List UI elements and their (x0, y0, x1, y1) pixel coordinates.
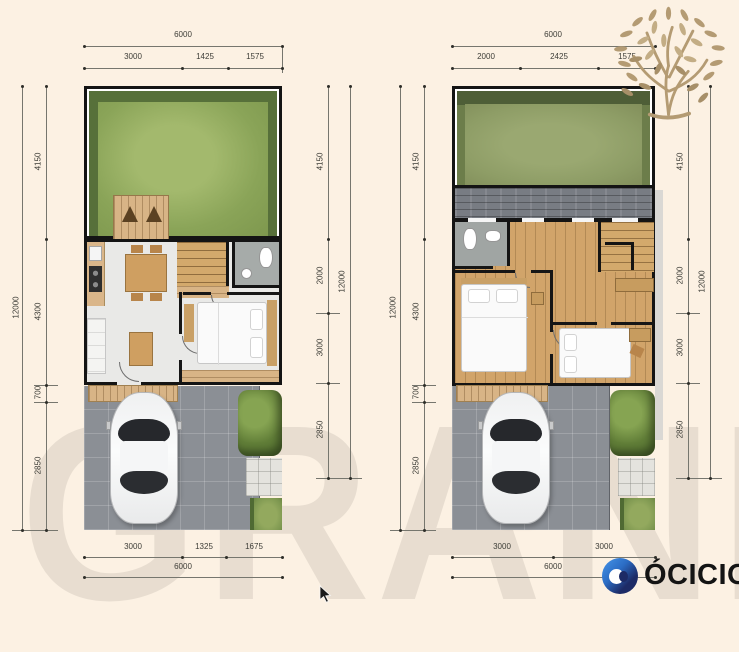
tick (349, 477, 352, 480)
tick (83, 556, 86, 559)
ocicio-logo-icon (602, 558, 638, 594)
dining-table (125, 254, 167, 292)
stair-rail (605, 242, 633, 245)
tick (181, 556, 184, 559)
dim-f1-left-seg3: 2850 (34, 446, 43, 486)
car-mirror (106, 421, 111, 430)
tick (423, 238, 426, 241)
dim-f2-bot-seg0: 3000 (477, 542, 527, 551)
wall (179, 292, 182, 334)
pillow (496, 289, 518, 303)
tick (281, 67, 284, 70)
tick (687, 382, 690, 385)
side-table (531, 292, 544, 305)
dim-f1-left-seg0: 4150 (34, 142, 43, 182)
dim-f1-top-seg2: 1575 (230, 52, 280, 61)
dim-f1-right-seg3: 2850 (316, 410, 325, 450)
tick (687, 477, 690, 480)
door-arc (119, 362, 139, 382)
tick (83, 576, 86, 579)
dining-chair (150, 245, 162, 253)
tick (552, 556, 555, 559)
dim-f1-right-seg2: 3000 (316, 328, 325, 368)
roof-edge-strip (655, 190, 663, 440)
tick (423, 401, 426, 404)
dim-f2-right-seg1: 2000 (676, 256, 685, 296)
deck-chair (122, 206, 138, 222)
car-mirror (549, 421, 554, 430)
dim-line (424, 86, 425, 530)
dim-ext (316, 478, 362, 479)
ocicio-logo-text: ÓCICIO (644, 559, 739, 592)
dim-f2-left-seg2: 700 (412, 373, 421, 413)
tick (21, 529, 24, 532)
duvet-fold (462, 317, 528, 318)
dim-f1-top-seg0: 3000 (108, 52, 158, 61)
bath-sink (485, 230, 501, 242)
dim-f2-right-seg0: 4150 (676, 142, 685, 182)
dim-f1-bot-seg0: 3000 (108, 542, 158, 551)
dim-f1-top-seg1: 1425 (180, 52, 230, 61)
tick (687, 312, 690, 315)
tick (225, 556, 228, 559)
dim-f2-right-total: 12000 (698, 262, 707, 302)
dim-ext (12, 530, 58, 531)
floor1-plan (84, 86, 282, 530)
stair-rail (631, 242, 634, 270)
wall (455, 266, 493, 269)
tick (687, 238, 690, 241)
tick (281, 576, 284, 579)
car-mirror (177, 421, 182, 430)
bedroom-wood-strip (182, 370, 279, 382)
dim-f2-left-seg1: 4300 (412, 292, 421, 332)
garden-deck (113, 195, 169, 242)
tick (45, 401, 48, 404)
toilet (463, 228, 477, 250)
wall (550, 354, 553, 383)
duvet-fold (218, 303, 219, 365)
tick (327, 85, 330, 88)
headboard (267, 300, 277, 366)
coffee-table (129, 332, 153, 366)
car (482, 392, 550, 524)
tick (451, 45, 454, 48)
pillow (250, 337, 263, 358)
floor2-plan (452, 86, 655, 530)
stairs (598, 222, 654, 272)
desk (629, 328, 651, 342)
tick (45, 85, 48, 88)
bed (559, 328, 631, 378)
dim-f2-bot-seg1: 3000 (579, 542, 629, 551)
wall (611, 322, 654, 325)
sofa (87, 318, 106, 374)
tick (399, 85, 402, 88)
tick (327, 477, 330, 480)
dim-f1-left-total: 12000 (12, 288, 21, 328)
wall (553, 322, 597, 325)
roof-tile-strip (452, 188, 655, 218)
tree-icon (598, 2, 739, 122)
dim-f1-top-total: 6000 (148, 30, 218, 39)
tick (45, 384, 48, 387)
bed (197, 302, 267, 364)
car-mirror (478, 421, 483, 430)
tick (45, 238, 48, 241)
tick (423, 529, 426, 532)
dim-line (400, 86, 401, 530)
tick (83, 45, 86, 48)
deck-chair (146, 206, 162, 222)
floor1-house (84, 239, 282, 385)
tick (281, 45, 284, 48)
tick (423, 85, 426, 88)
tick (519, 67, 522, 70)
shrub (238, 390, 282, 456)
car-roof (120, 441, 168, 472)
dim-f2-left-seg3: 2850 (412, 446, 421, 486)
dim-f1-right-total: 12000 (338, 262, 347, 302)
wall (183, 292, 211, 295)
toilet (259, 247, 273, 268)
tick (349, 85, 352, 88)
tick (327, 312, 330, 315)
paver-path (618, 458, 655, 496)
bath-sink (241, 268, 252, 279)
dim-f1-bot-seg1: 1325 (179, 542, 229, 551)
dim-line (22, 86, 23, 530)
dim-f1-left-seg2: 700 (34, 373, 43, 413)
car-roof (492, 441, 540, 472)
tick (451, 576, 454, 579)
chair (629, 344, 644, 358)
floor1-garden (84, 86, 282, 239)
pillow (250, 309, 263, 330)
dim-f2-top-seg1: 2425 (534, 52, 584, 61)
dim-f1-bot-total: 6000 (148, 562, 218, 571)
tick (709, 477, 712, 480)
dim-line (328, 86, 329, 478)
stairs (177, 242, 229, 286)
dim-f1-right-seg1: 2000 (316, 256, 325, 296)
bedside-bench (184, 304, 194, 342)
bathroom (455, 222, 510, 266)
tick (21, 85, 24, 88)
pillow (564, 334, 577, 351)
dim-f2-bot-total: 6000 (518, 562, 588, 571)
tick (423, 384, 426, 387)
kitchen-counter (87, 242, 105, 306)
dim-f2-top-total: 6000 (518, 30, 588, 39)
wall (455, 270, 515, 273)
dim-line (710, 86, 711, 478)
car (110, 392, 178, 524)
dim-f2-left-seg0: 4150 (412, 142, 421, 182)
stove (89, 266, 102, 292)
logo-icon-inner-dot (619, 571, 628, 582)
dim-ext (676, 478, 722, 479)
dim-ext (390, 530, 436, 531)
tick (181, 67, 184, 70)
tick (327, 382, 330, 385)
tick (227, 67, 230, 70)
dim-f1-bot-seg2: 1675 (229, 542, 279, 551)
dim-f2-right-seg2: 3000 (676, 328, 685, 368)
dim-f2-top-seg0: 2000 (461, 52, 511, 61)
dim-line (350, 86, 351, 478)
tick (451, 67, 454, 70)
tick (281, 556, 284, 559)
bathroom (232, 242, 279, 288)
dim-f1-right-seg0: 4150 (316, 142, 325, 182)
paver-path (246, 458, 282, 496)
ocicio-logo: ÓCICIO (602, 554, 739, 596)
tick (451, 556, 454, 559)
wardrobe (615, 278, 654, 292)
dim-f1-left-seg1: 4300 (34, 292, 43, 332)
page: { "background": "#fcf1e3", "watermark": … (0, 0, 739, 600)
dim-f2-left-total: 12000 (389, 288, 398, 328)
mouse-cursor-icon (319, 585, 333, 608)
tick (327, 238, 330, 241)
grass-corner (250, 498, 282, 530)
shrub (610, 390, 655, 456)
dining-chair (150, 293, 162, 301)
dim-line (84, 577, 282, 578)
grass-corner (620, 498, 655, 530)
dim-line (688, 86, 689, 478)
bed (461, 284, 527, 372)
dim-line (84, 46, 282, 47)
dining-chair (131, 293, 143, 301)
dim-line (46, 86, 47, 530)
tick (399, 529, 402, 532)
dining-chair (131, 245, 143, 253)
tick (83, 67, 86, 70)
pillow (564, 356, 577, 373)
floor2-house (452, 222, 655, 386)
wall (227, 292, 279, 295)
tick (45, 529, 48, 532)
dim-f2-right-seg3: 2850 (676, 410, 685, 450)
kitchen-sink (89, 246, 102, 261)
pillow (468, 289, 490, 303)
